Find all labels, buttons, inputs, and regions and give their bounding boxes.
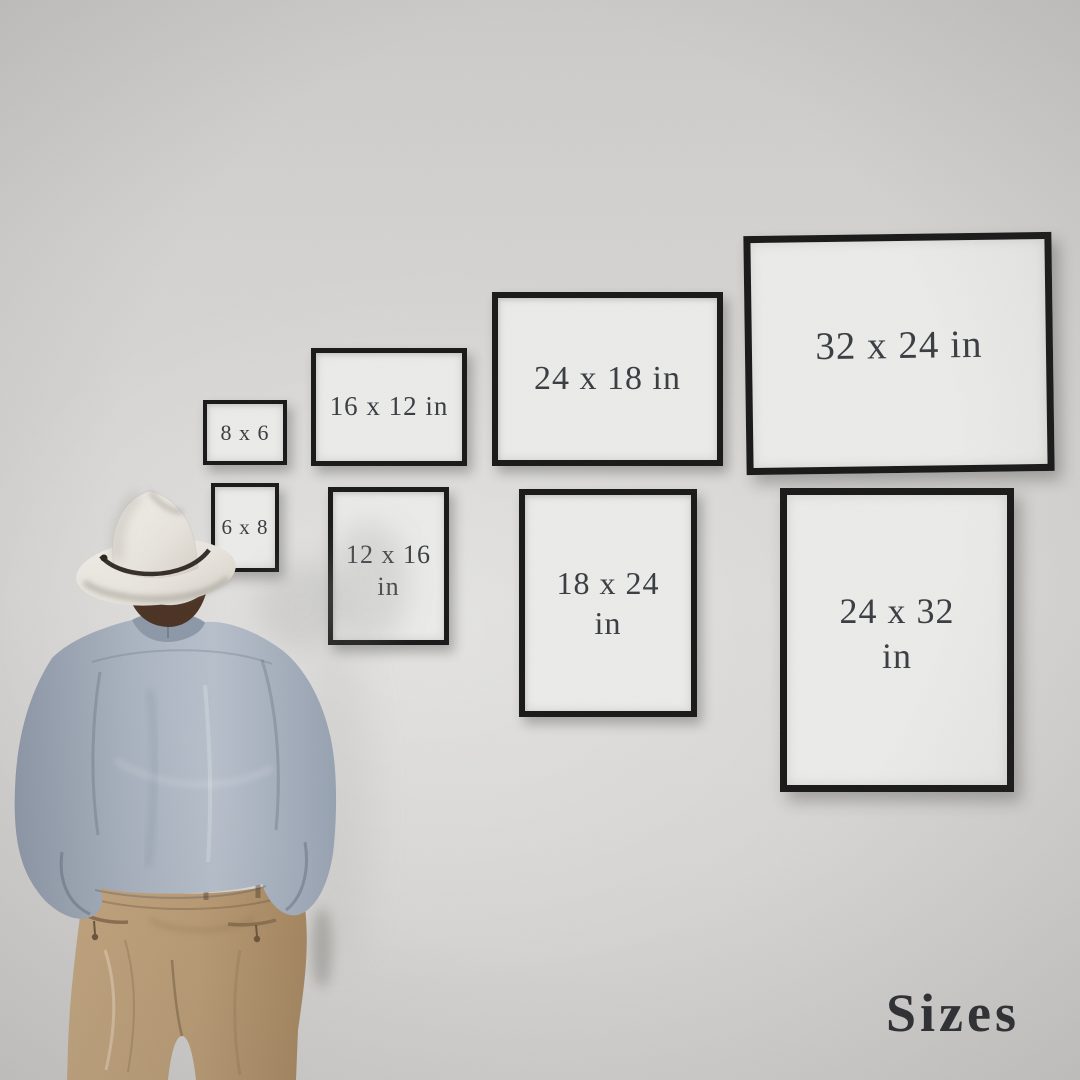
frame-size-label: 16 x 12 in <box>330 390 449 424</box>
size-frame-24x32: 24 x 32in <box>780 488 1014 792</box>
frame-size-label: 24 x 32in <box>840 589 955 679</box>
shirt-collar <box>132 613 205 642</box>
sizes-title: Sizes <box>886 982 1020 1044</box>
frame-size-label: 12 x 16in <box>346 539 431 604</box>
frame-size-label: 18 x 24in <box>557 563 660 643</box>
hat-band <box>101 550 209 574</box>
size-frame-8x6: 8 x 6 <box>203 400 287 465</box>
wall-scene: 8 x 6 16 x 12 in 24 x 18 in 32 x 24 in 6… <box>0 0 1080 1080</box>
size-frame-24x18: 24 x 18 in <box>492 292 723 466</box>
frame-size-label: 6 x 8 <box>222 514 269 540</box>
size-frame-12x16: 12 x 16in <box>328 487 449 645</box>
man-hair <box>127 588 207 627</box>
frame-size-label: 32 x 24 in <box>815 321 983 372</box>
man-pants <box>67 874 307 1080</box>
size-frame-6x8: 6 x 8 <box>211 483 279 572</box>
size-frame-16x12: 16 x 12 in <box>311 348 467 466</box>
frame-size-label: 24 x 18 in <box>534 358 681 401</box>
size-frame-32x24: 32 x 24 in <box>743 232 1054 475</box>
frame-size-label: 8 x 6 <box>221 419 270 447</box>
man-shirt <box>15 612 336 919</box>
size-frame-18x24: 18 x 24in <box>519 489 697 717</box>
